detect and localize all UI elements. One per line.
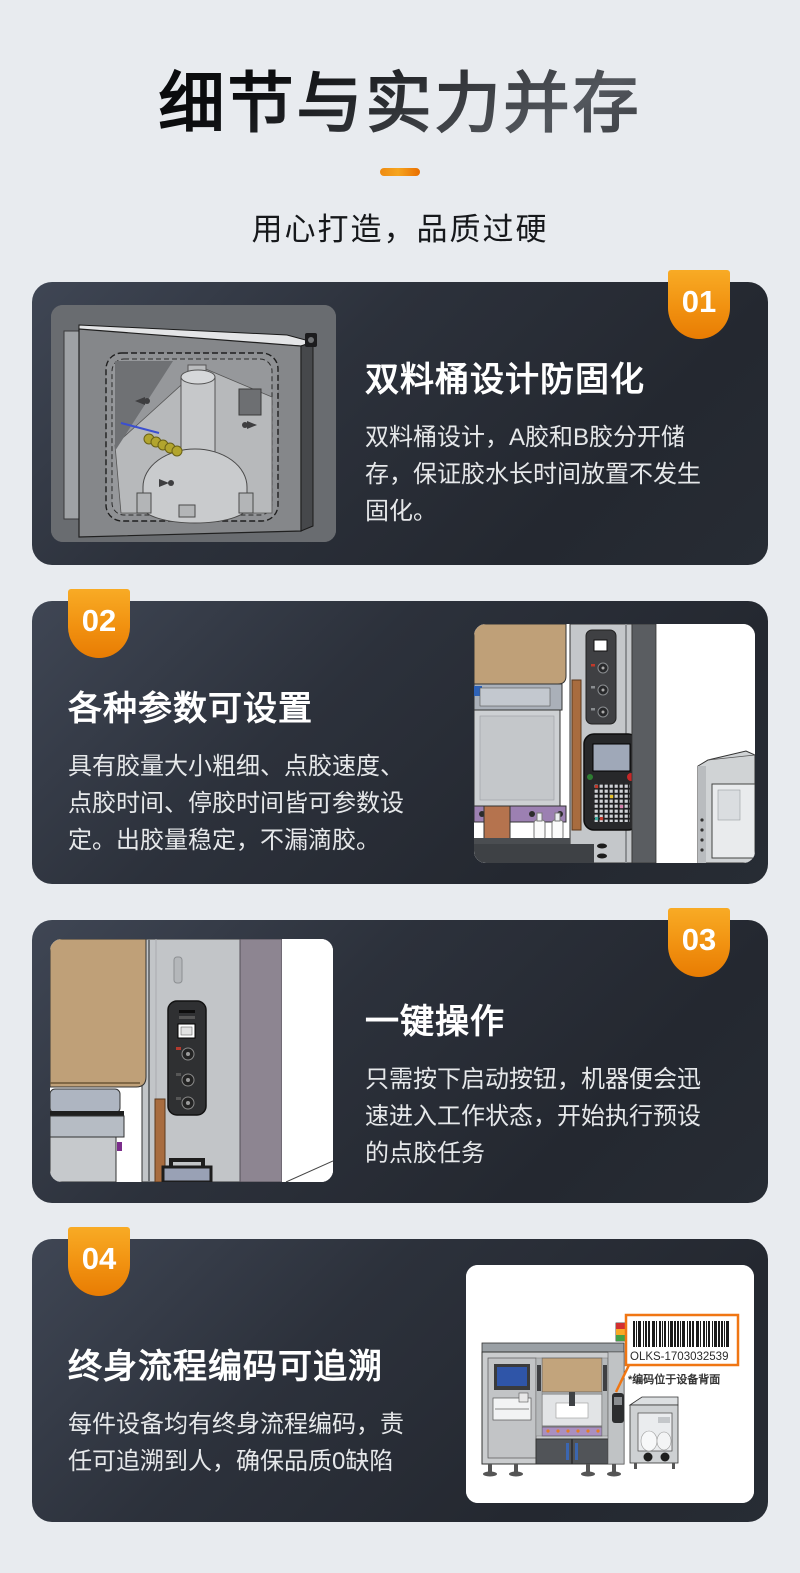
- feature-card-dual-barrel: 01: [32, 282, 768, 565]
- feature-number-badge: 02: [68, 589, 130, 658]
- interior-panel: [474, 624, 566, 684]
- promo-page: 细节与实力并存 用心打造，品质过硬 01: [0, 0, 800, 1573]
- dual-barrel-cad-illustration: [51, 305, 336, 542]
- feature-image-barcode: OLKS-1703032539 *编码位于设备背面: [466, 1265, 754, 1503]
- feature-image-teach-pendant: [474, 624, 755, 863]
- material-box: [484, 806, 510, 840]
- page-title: 细节与实力并存: [0, 0, 800, 146]
- hmi-screen: [497, 1367, 527, 1386]
- feature-title: 终身流程编码可追溯: [68, 1339, 464, 1388]
- title-accent-dash: [380, 168, 420, 176]
- door-hinge: [305, 333, 317, 347]
- feature-text-block: 终身流程编码可追溯 每件设备均有终身流程编码，责 任可追溯到人，确保品质0缺陷: [68, 1339, 464, 1480]
- start-button-panel-illustration: [50, 939, 333, 1182]
- feature-description: 每件设备均有终身流程编码，责 任可追溯到人，确保品质0缺陷: [68, 1406, 464, 1480]
- feature-text-block: 双料桶设计防固化 双料桶设计，A胶和B胶分开储 存，保证胶水长时间放置不发生 固…: [365, 352, 753, 530]
- traceability-illustration: OLKS-1703032539 *编码位于设备背面: [466, 1265, 754, 1503]
- feature-card-parameters: 02 各种参数可设置 具有胶量大小粗细、点胶速度、 点胶时间、停胶时间皆可参数设…: [32, 601, 768, 884]
- dispensing-machine: [482, 1323, 625, 1477]
- barcode-text: OLKS-1703032539: [630, 1351, 728, 1363]
- teach-pendant: [584, 734, 638, 830]
- feature-image-start-panel: [50, 939, 333, 1182]
- feature-number-badge: 04: [68, 1227, 130, 1296]
- barcode-callout: OLKS-1703032539 *编码位于设备背面: [616, 1315, 738, 1392]
- feature-number-badge: 03: [668, 908, 730, 977]
- start-button-panel: [168, 1001, 206, 1115]
- side-cabinet: [698, 751, 755, 863]
- feature-card-one-touch: 03: [32, 920, 768, 1203]
- feature-image-dual-barrel: [51, 305, 336, 542]
- feature-text-block: 各种参数可设置 具有胶量大小粗细、点胶速度、 点胶时间、停胶时间皆可参数设 定。…: [68, 681, 464, 859]
- feature-title: 一键操作: [365, 994, 761, 1043]
- feature-description: 具有胶量大小粗细、点胶速度、 点胶时间、停胶时间皆可参数设 定。出胶量稳定，不漏…: [68, 748, 464, 859]
- teach-pendant-illustration: [474, 624, 755, 863]
- feature-number-badge: 01: [668, 270, 730, 339]
- page-header: 细节与实力并存 用心打造，品质过硬: [0, 0, 800, 249]
- barcode-note: *编码位于设备背面: [628, 1372, 720, 1386]
- feature-card-traceability: 04 终身流程编码可追溯 每件设备均有终身流程编码，责 任可追溯到人，确保品质0…: [32, 1239, 768, 1522]
- feature-title: 各种参数可设置: [68, 681, 464, 730]
- page-subtitle: 用心打造，品质过硬: [0, 204, 800, 249]
- feature-description: 只需按下启动按钮，机器便会迅 速进入工作状态，开始执行预设 的点胶任务: [365, 1061, 761, 1172]
- side-cabinet: [630, 1397, 678, 1469]
- feature-text-block: 一键操作 只需按下启动按钮，机器便会迅 速进入工作状态，开始执行预设 的点胶任务: [365, 994, 761, 1172]
- interior-panel: [50, 939, 146, 1087]
- feature-description: 双料桶设计，A胶和B胶分开储 存，保证胶水长时间放置不发生 固化。: [365, 419, 753, 530]
- feature-title: 双料桶设计防固化: [365, 352, 753, 401]
